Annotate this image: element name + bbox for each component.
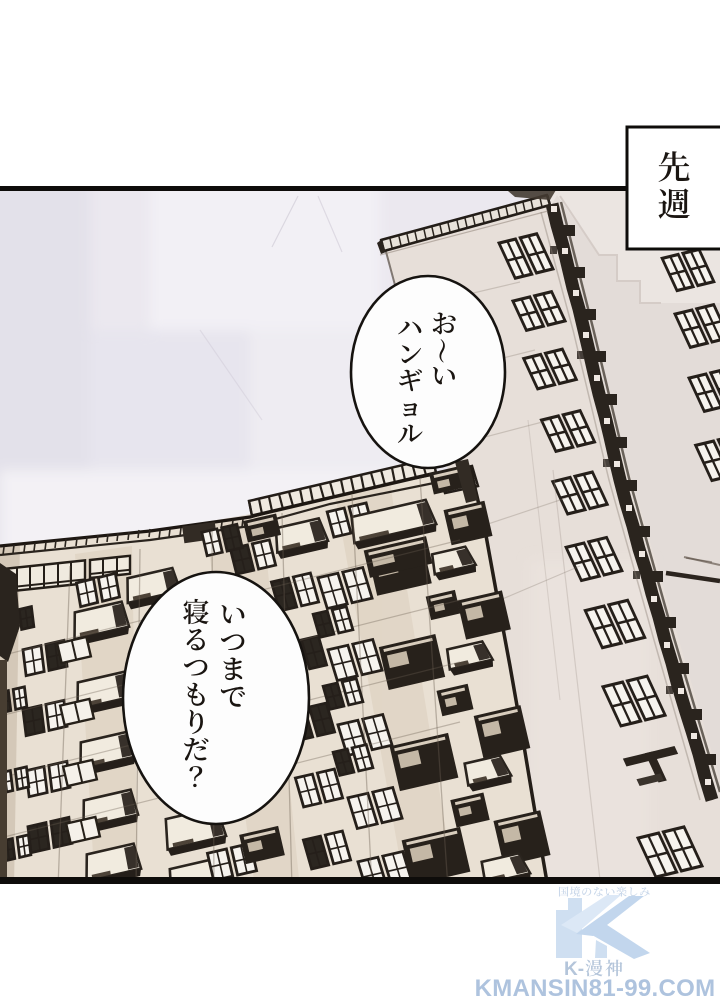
svg-text:KMANSIN81-99.COM: KMANSIN81-99.COM <box>475 975 716 1000</box>
